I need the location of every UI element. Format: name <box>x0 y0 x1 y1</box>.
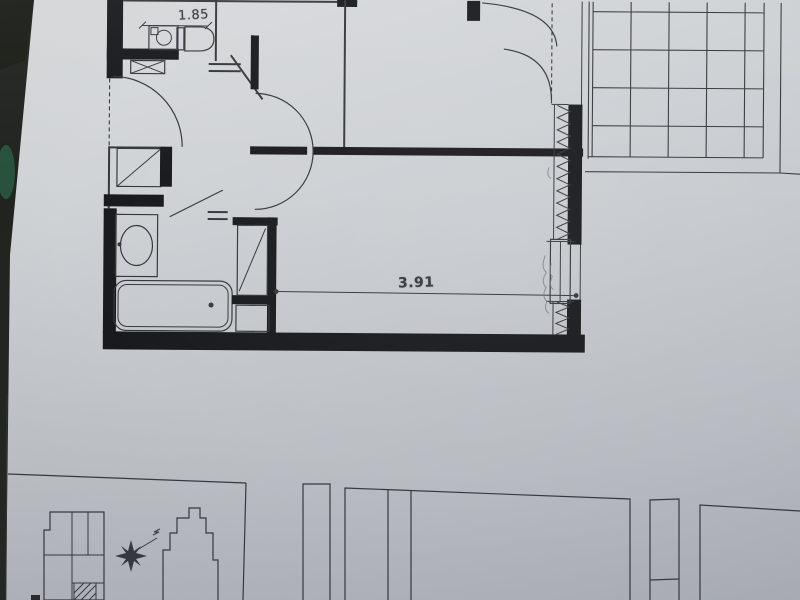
entry-door-arc <box>112 76 182 146</box>
door-frame-dashed <box>551 3 552 103</box>
vestibule-right-wall <box>344 0 345 148</box>
left-wall-upper <box>107 0 124 78</box>
bathroom-top-wall <box>104 194 164 206</box>
wall-node-dot <box>520 149 526 155</box>
wall-node <box>337 0 357 7</box>
wardrobe <box>232 217 278 339</box>
floor-plan <box>103 0 800 354</box>
bathtub-symbol <box>114 280 232 331</box>
french-doors <box>466 1 557 104</box>
duct-symbol <box>131 60 165 73</box>
washing-machine-symbol <box>149 26 178 50</box>
section-drawings <box>303 484 800 600</box>
hallway <box>109 0 357 210</box>
left-wall-lower <box>103 208 117 333</box>
dimension-label-wc: 1.85 <box>178 7 210 24</box>
wide-panel <box>345 488 630 600</box>
partition-wall-right <box>313 147 583 157</box>
dimension-label-room: 3.91 <box>398 275 435 292</box>
exterior-wall <box>543 1 584 336</box>
tall-rectangle-strip <box>650 499 679 600</box>
shelf-niche <box>236 305 269 331</box>
unit-location-hatch <box>74 583 96 600</box>
washbasin-symbol <box>115 214 157 276</box>
door-jamb-stub <box>467 1 480 21</box>
balcony <box>585 2 800 174</box>
bathroom <box>103 189 233 334</box>
site-plan-border-right <box>243 483 246 600</box>
hall-closet <box>117 146 172 186</box>
right-panel <box>700 505 800 600</box>
french-door-arc-upper <box>482 3 557 47</box>
toilet-symbol <box>177 27 214 51</box>
north-arrow <box>137 538 157 550</box>
floorplan-drawing <box>0 0 800 600</box>
narrow-panel <box>303 484 330 600</box>
building-outline-right <box>163 508 218 600</box>
handwriting-marks <box>543 167 554 313</box>
french-door-arc-lower <box>503 49 551 101</box>
photographed-floorplan: 1.85 3.91 <box>0 0 800 600</box>
site-plan-border-top <box>8 474 246 483</box>
site-plan <box>6 395 246 600</box>
wardrobe-diagonal <box>239 228 265 291</box>
door-jamb-wall <box>251 35 259 89</box>
north-star-icon <box>115 529 160 572</box>
photo-backdrop <box>0 0 34 600</box>
partition-wall-left <box>250 146 307 154</box>
building-outline-left <box>44 512 104 600</box>
top-wall-cut <box>123 0 357 2</box>
bottom-wall <box>103 331 585 352</box>
corner-mark <box>31 595 40 600</box>
